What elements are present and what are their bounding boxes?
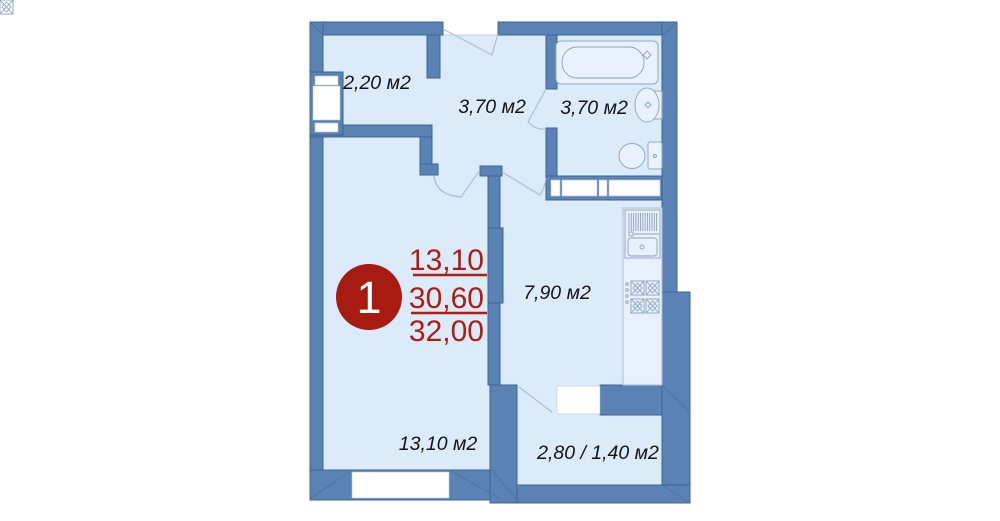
toilet-bowl-icon (619, 144, 645, 169)
bathroom-area-label: 3,70 м2 (560, 97, 628, 119)
toilet-tank-icon (648, 142, 662, 169)
total-area-value: 32,00 (409, 315, 484, 348)
balcony-area-label: 2,80 / 1,40 м2 (536, 442, 659, 464)
balcony-door (557, 386, 600, 414)
wall-bottom-balcony (490, 485, 690, 503)
kitchen-area-label: 7,90 м2 (523, 282, 591, 304)
living-area-value: 13,10 (409, 244, 484, 277)
floor-plan-canvas: 2,20 м2 3,70 м2 3,70 м2 7,90 м2 13,10 м2… (0, 0, 1000, 521)
washbasin-icon (635, 88, 659, 122)
wall-bathroom-lower (546, 128, 557, 178)
living-room-area-label: 13,10 м2 (399, 433, 478, 455)
hallway-area-label: 3,70 м2 (458, 96, 526, 118)
vent-shaft-3 (599, 180, 607, 196)
vent-shaft-2 (562, 180, 597, 196)
vent-shaft-4 (609, 180, 660, 196)
entrance-door (313, 86, 340, 120)
entrance-door-frame-top (315, 76, 338, 85)
stove-burner-icon (0, 0, 13, 14)
entry-hall-area-label: 2,20 м2 (342, 72, 411, 94)
wall-right-upper (662, 22, 677, 292)
wall-kitchen-balcony (600, 385, 662, 415)
entrance-door-frame-bottom (315, 123, 338, 132)
wall-pilaster (488, 228, 503, 303)
floor-plan: 2,20 м2 3,70 м2 3,70 м2 7,90 м2 13,10 м2… (0, 0, 1000, 521)
vent-shaft-1 (551, 180, 560, 196)
wall-top-right (498, 22, 677, 35)
wall-bathroom-upper (546, 35, 557, 89)
living-room-window (352, 472, 449, 498)
wall-living-leg-cap (420, 164, 438, 175)
wall-entry-partition (427, 35, 440, 78)
wall-tcap (480, 166, 502, 176)
wall-top-left (310, 22, 443, 35)
unit-number: 1 (356, 272, 381, 323)
wall-living-leg (420, 137, 432, 165)
wall-right-lower (662, 292, 690, 503)
wall-balcony-left (490, 385, 517, 503)
usable-area-value: 30,60 (409, 282, 484, 315)
